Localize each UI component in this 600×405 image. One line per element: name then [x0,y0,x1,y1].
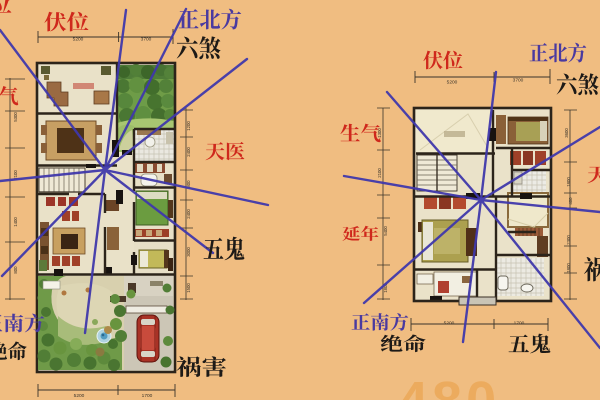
svg-text:1700: 1700 [514,320,525,326]
svg-text:5400: 5400 [383,226,388,236]
svg-text:800: 800 [13,266,18,274]
svg-text:3600: 3600 [564,128,569,138]
svg-text:5300: 5300 [13,112,18,122]
svg-text:1200: 1200 [186,121,191,131]
svg-text:2400: 2400 [186,209,191,219]
svg-text:5200: 5200 [74,393,85,399]
svg-text:1800: 1800 [566,177,571,187]
svg-text:5200: 5200 [444,320,455,326]
svg-text:5200: 5200 [447,80,458,86]
svg-text:2100: 2100 [377,168,382,178]
svg-text:3000: 3000 [186,247,191,257]
svg-text:3700: 3700 [513,77,524,83]
svg-text:2400: 2400 [186,147,191,157]
svg-text:5200: 5200 [73,37,84,43]
svg-text:1700: 1700 [142,393,153,399]
svg-text:1400: 1400 [13,217,18,227]
svg-text:480: 480 [398,371,500,400]
svg-text:400: 400 [568,197,573,205]
svg-text:1800: 1800 [566,263,571,273]
svg-text:1500: 1500 [186,283,191,293]
svg-text:2300: 2300 [566,235,571,245]
svg-text:3700: 3700 [141,37,152,43]
